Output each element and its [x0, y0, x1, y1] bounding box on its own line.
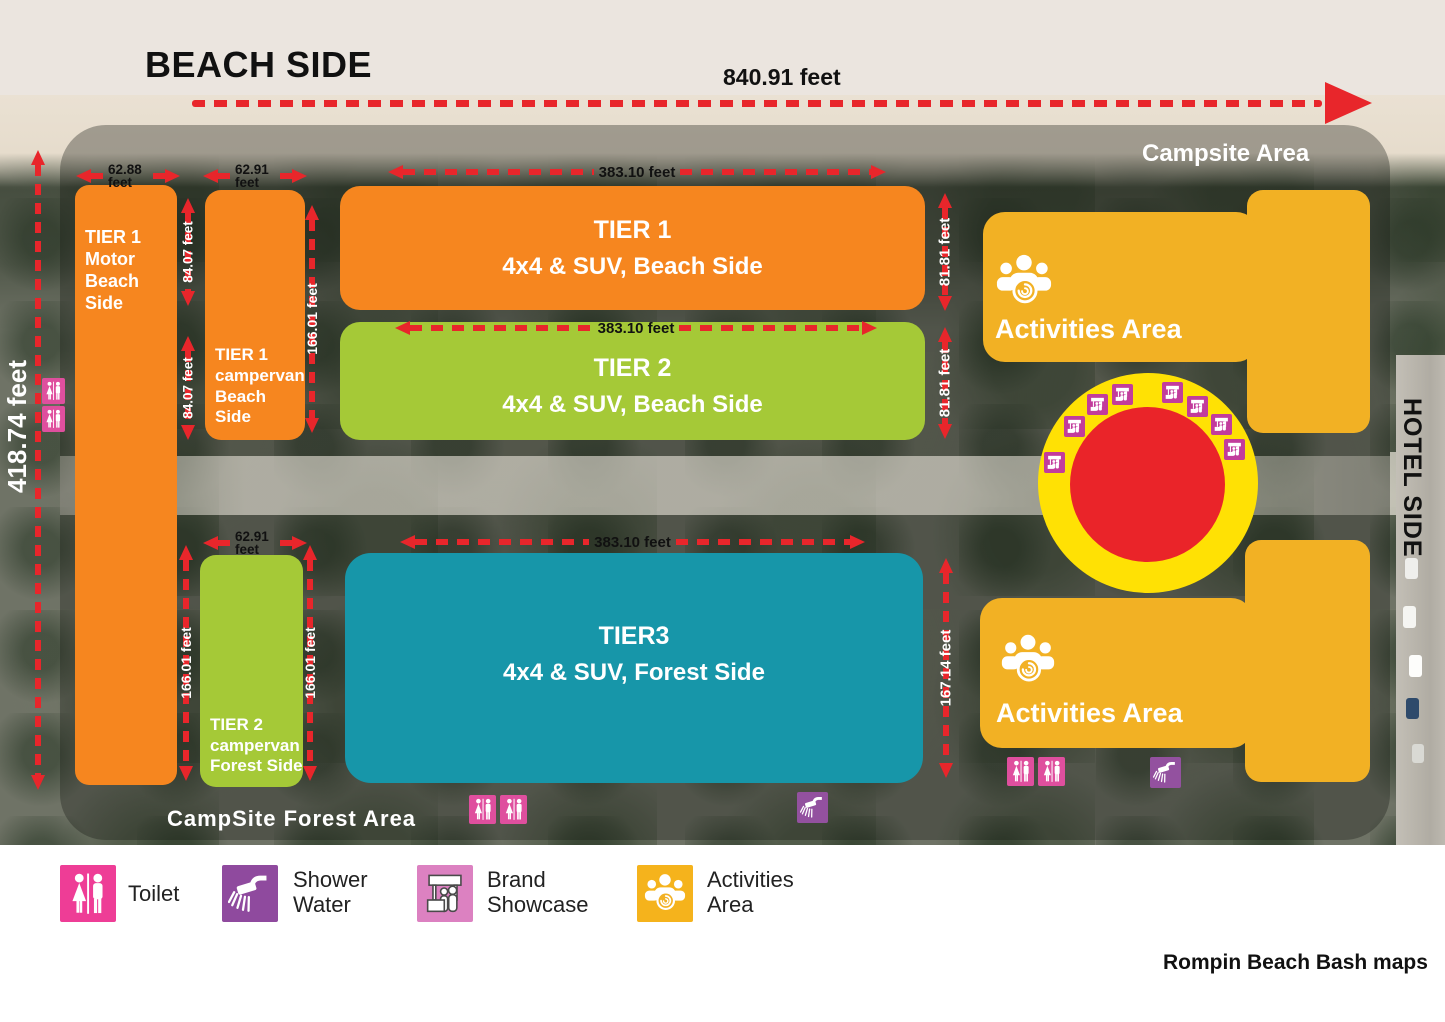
- dim-tier3-row-height: 167.14 feet: [935, 558, 957, 778]
- beach-side-label: BEACH SIDE: [145, 44, 372, 86]
- car: [1405, 558, 1418, 579]
- dim-tier1-campervan-height: 166.01 feet: [301, 205, 323, 433]
- car: [1412, 744, 1424, 763]
- zone-tier1-motor: TIER 1 Motor Beach Side: [75, 185, 177, 785]
- zone-tier2-campervan: TIER 2 campervan Forest Side: [200, 555, 303, 787]
- map-poster: BEACH SIDE 840.91 feet Campsite Area Cam…: [0, 0, 1445, 1022]
- dim-tier1-row-height: 81.81 feet: [934, 193, 956, 311]
- legend-toilet-label: Toilet: [128, 881, 179, 906]
- dim-gap-b: 84.07 feet: [177, 336, 199, 440]
- shower-icon: [1150, 757, 1181, 788]
- activities-people-icon: [993, 252, 1055, 310]
- brand-showcase-booth-icon: [1187, 396, 1208, 417]
- zone-activities-top-tab: [1247, 190, 1370, 433]
- zone-activities-top: Activities Area: [983, 212, 1258, 362]
- activities-people-icon: [998, 632, 1058, 688]
- zone-activities-bottom-tab: [1245, 540, 1370, 782]
- legend-shower-label: Shower Water: [293, 867, 368, 917]
- beach-width-arrow-line: [192, 100, 1322, 107]
- dim-gap-a: 84.07 feet: [177, 198, 199, 306]
- dim-tier1-motor-width: 62.88 feet: [76, 168, 180, 184]
- zone-tier2-campervan-label: TIER 2 campervan Forest Side: [210, 715, 303, 777]
- activities-bottom-label: Activities Area: [996, 698, 1183, 729]
- dim-tier2-row-height: 81.81 feet: [934, 327, 956, 439]
- brand-showcase-booth-icon: [1211, 414, 1232, 435]
- brand-showcase-booth-icon: [1044, 452, 1065, 473]
- zone-tier1-motor-label: TIER 1 Motor Beach Side: [85, 227, 141, 315]
- toilet-icon: [1007, 757, 1034, 786]
- dim-tier1-row-width: 383.10 feet: [388, 164, 886, 180]
- zone-tier3-row: TIER3 4x4 & SUV, Forest Side: [345, 553, 923, 783]
- beach-width-arrowhead: [1325, 82, 1372, 124]
- toilet-icon: [60, 865, 116, 922]
- zone-tier1-row-title: TIER 1: [594, 216, 672, 245]
- legend-brand-showcase-label: Brand Showcase: [487, 867, 589, 917]
- dim-tier2-campervan-height-right: 166.01 feet: [299, 545, 321, 781]
- brand-showcase-booth-icon: [1162, 382, 1183, 403]
- map-credit: Rompin Beach Bash maps: [1163, 951, 1428, 975]
- zone-tier1-campervan: TIER 1 campervan Beach Side: [205, 190, 305, 440]
- zone-tier3-row-subtitle: 4x4 & SUV, Forest Side: [503, 659, 765, 687]
- activities-top-label: Activities Area: [995, 314, 1182, 345]
- dim-tier2-row-width: 383.10 feet: [395, 320, 877, 336]
- zone-tier2-row-subtitle: 4x4 & SUV, Beach Side: [502, 391, 763, 419]
- brand-showcase-booth-icon: [1064, 416, 1085, 437]
- car: [1409, 655, 1422, 677]
- dim-tier2-campervan-height-left: 166.01 feet: [175, 545, 197, 781]
- site-height-dimension: 418.74 feet: [2, 360, 33, 493]
- shower-icon: [797, 792, 828, 823]
- brand-showcase-booth-icon: [1224, 439, 1245, 460]
- brand-showcase-booth-icon: [1112, 384, 1133, 405]
- zone-tier2-row: TIER 2 4x4 & SUV, Beach Side: [340, 322, 925, 440]
- dim-tier2-campervan-width: 62.91 feet: [203, 535, 307, 551]
- main-stage-circle: [1070, 407, 1225, 562]
- toilet-icon: [500, 795, 527, 824]
- brand-showcase-icon: [417, 865, 473, 922]
- dim-tier3-row-width: 383.10 feet: [400, 534, 865, 550]
- activities-icon: [637, 865, 693, 922]
- zone-tier2-row-title: TIER 2: [594, 354, 672, 383]
- car: [1406, 698, 1419, 719]
- beach-width-dimension: 840.91 feet: [723, 64, 841, 91]
- brand-showcase-booth-icon: [1087, 394, 1108, 415]
- zone-tier1-campervan-label: TIER 1 campervan Beach Side: [215, 345, 305, 428]
- shower-icon: [222, 865, 278, 922]
- toilet-icon: [469, 795, 496, 824]
- toilet-icon: [1038, 757, 1065, 786]
- dim-tier1-campervan-width: 62.91 feet: [203, 168, 307, 184]
- car: [1403, 606, 1416, 628]
- zone-tier1-row-subtitle: 4x4 & SUV, Beach Side: [502, 253, 763, 281]
- hotel-side-label: HOTEL SIDE: [1397, 398, 1426, 558]
- zone-tier3-row-title: TIER3: [599, 622, 670, 651]
- zone-tier1-row: TIER 1 4x4 & SUV, Beach Side: [340, 186, 925, 310]
- campsite-area-label: Campsite Area: [1142, 140, 1309, 168]
- campsite-forest-area-label: CampSite Forest Area: [167, 806, 416, 832]
- legend-activities-label: Activities Area: [707, 867, 794, 917]
- zone-activities-bottom: Activities Area: [980, 598, 1253, 748]
